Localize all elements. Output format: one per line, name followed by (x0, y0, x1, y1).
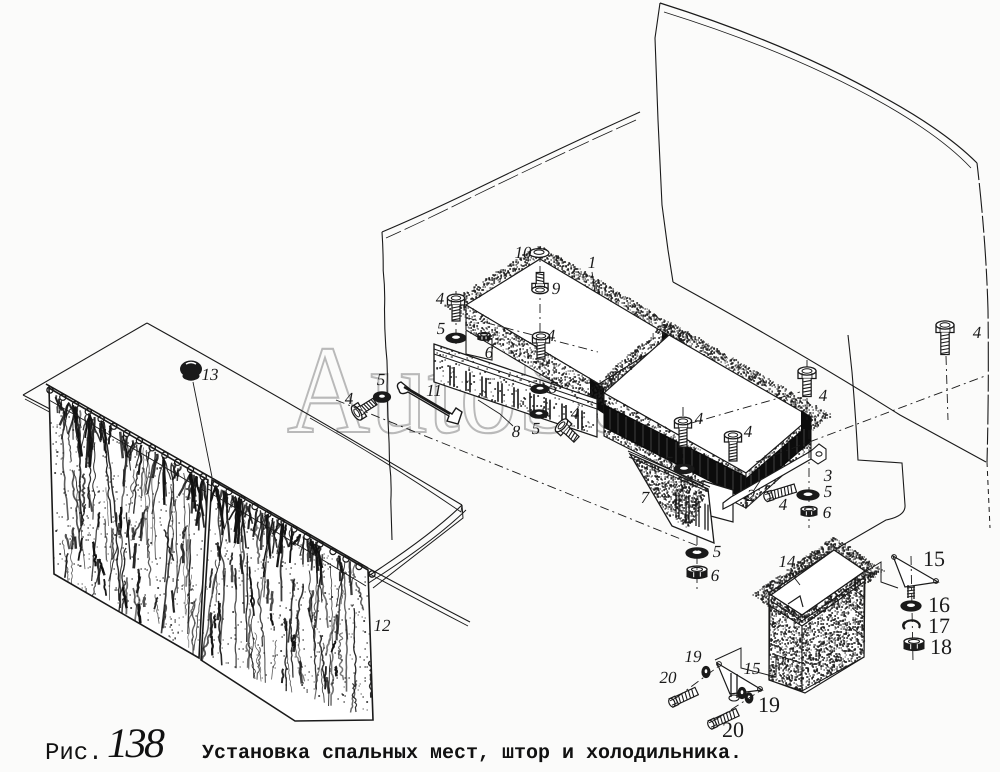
svg-text:12: 12 (374, 616, 392, 635)
svg-text:4: 4 (744, 422, 753, 441)
svg-text:4: 4 (547, 326, 556, 345)
svg-text:11: 11 (426, 381, 442, 400)
svg-text:20: 20 (722, 717, 744, 742)
svg-text:13: 13 (202, 365, 219, 384)
svg-text:15: 15 (744, 659, 761, 678)
svg-text:14: 14 (779, 552, 797, 571)
svg-text:4: 4 (779, 495, 788, 514)
svg-text:6: 6 (485, 343, 494, 362)
svg-text:15: 15 (923, 546, 945, 571)
svg-text:5: 5 (532, 419, 541, 438)
svg-text:6: 6 (823, 503, 832, 522)
svg-text:Рис.: Рис. (45, 740, 103, 767)
svg-text:Установка спальных мест, штор: Установка спальных мест, штор и холодиль… (202, 742, 742, 765)
svg-text:4: 4 (436, 289, 445, 308)
svg-text:20: 20 (660, 668, 678, 687)
svg-text:5: 5 (549, 378, 558, 397)
svg-text:18: 18 (930, 634, 952, 659)
svg-text:138: 138 (107, 721, 165, 767)
svg-text:8: 8 (512, 422, 521, 441)
svg-text:5: 5 (377, 370, 386, 389)
svg-text:4: 4 (973, 323, 982, 342)
svg-text:5: 5 (665, 453, 674, 472)
svg-text:9: 9 (552, 279, 561, 298)
svg-text:4: 4 (571, 404, 580, 423)
svg-text:5: 5 (437, 319, 446, 338)
svg-text:1: 1 (588, 253, 597, 272)
svg-text:4: 4 (695, 409, 704, 428)
svg-text:19: 19 (685, 647, 703, 666)
svg-text:19: 19 (758, 692, 780, 717)
svg-text:5: 5 (713, 542, 722, 561)
svg-text:5: 5 (824, 482, 833, 501)
svg-text:10: 10 (515, 243, 533, 262)
svg-text:6: 6 (711, 566, 720, 585)
svg-text:4: 4 (819, 386, 828, 405)
